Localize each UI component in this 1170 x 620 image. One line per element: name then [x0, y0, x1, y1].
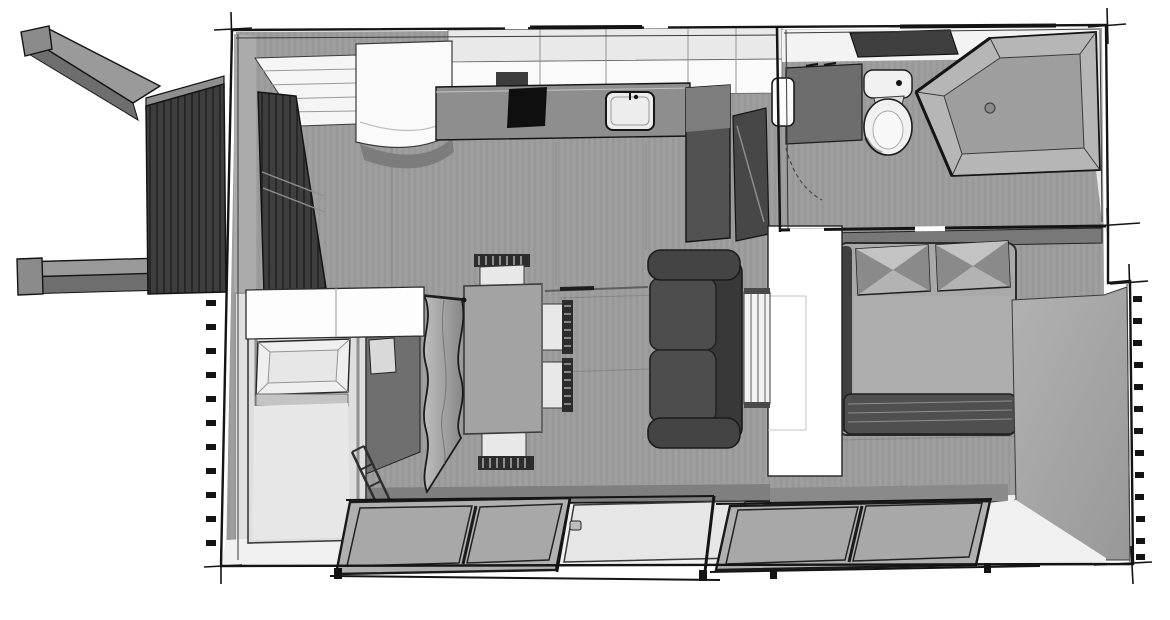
second-pillow: [369, 338, 396, 374]
deck-slats: [146, 84, 226, 294]
shelf-slats: [744, 288, 770, 408]
right-wall-ticks: [1133, 296, 1145, 560]
glass-pane-2: [467, 504, 562, 563]
sink-faucet-base: [634, 95, 638, 99]
glass-pane-light: [564, 501, 745, 562]
dining-chair-bottom: [478, 430, 534, 470]
kid-pillow-inner: [268, 350, 338, 383]
glass-pane-1: [726, 507, 858, 564]
vanity: [786, 63, 862, 144]
toilet-flush-button: [896, 80, 902, 86]
wardrobe-body: [768, 226, 842, 476]
chair-seat: [482, 430, 526, 459]
sofa-seat-1: [650, 278, 716, 350]
pillow-right: [936, 241, 1010, 291]
tall-cabinet-top: [686, 85, 730, 132]
floor-vent: [560, 288, 594, 289]
wardrobe: [768, 226, 842, 476]
sofa: [648, 250, 742, 448]
double-bed: [838, 241, 1016, 435]
pillow-left: [856, 245, 930, 295]
dining-chair-right-1: [540, 300, 573, 354]
hitch-beam-lower-cap: [17, 258, 43, 295]
kitchen-sink: [606, 91, 654, 130]
bathroom-door-open: [733, 108, 769, 241]
shower-drain: [985, 103, 995, 113]
mirror: [772, 78, 794, 126]
toilet-bowl-inner: [873, 111, 903, 149]
kids-cabinet-body: [246, 287, 424, 339]
bed-blanket: [844, 394, 1016, 434]
sofa-armrest-top: [648, 250, 740, 280]
sofa-armrest-bottom: [648, 418, 740, 448]
kids-cabinet: [246, 287, 424, 339]
sofa-seat-2: [650, 350, 716, 422]
bed-mattress: [854, 296, 1012, 394]
track-bottom: [330, 576, 720, 580]
kitchen-counter: [436, 83, 690, 140]
floorplan-canvas: [0, 0, 1170, 620]
floorplan-svg: [0, 0, 1170, 620]
dining-table: [464, 284, 542, 434]
dining-chair-right-2: [540, 358, 573, 412]
kid-blanket: [252, 403, 350, 540]
glass-pane-2: [853, 503, 982, 561]
track-foot-left: [334, 568, 342, 579]
cooktop: [507, 87, 547, 128]
cabinet-top-face: [448, 27, 782, 62]
glass-pane-1: [347, 506, 472, 566]
tall-cabinet: [686, 85, 730, 242]
skylight: [850, 30, 958, 57]
latch-left: [570, 521, 581, 530]
left-wall-ticks: [206, 300, 216, 546]
track-foot-left: [770, 569, 777, 579]
left-wall-face: [234, 34, 256, 292]
hitch-beams: [17, 26, 165, 295]
vanity-top: [786, 64, 862, 144]
entry-deck: [146, 76, 226, 294]
toilet-tank: [864, 70, 912, 98]
toilet: [864, 70, 912, 155]
